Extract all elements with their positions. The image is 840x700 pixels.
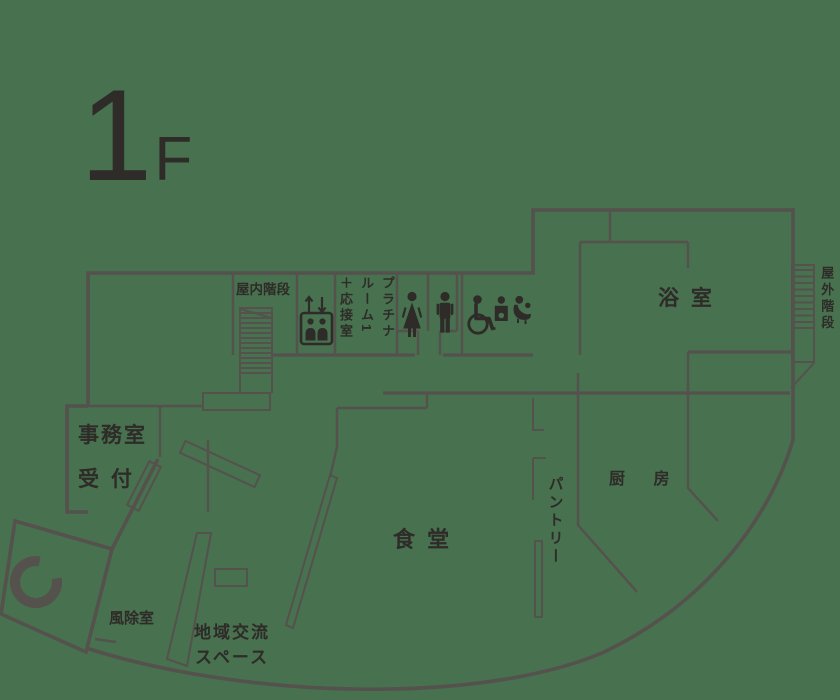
community-line-2: スペース xyxy=(168,646,296,671)
lobby-counter xyxy=(180,441,260,487)
under-stair-box xyxy=(203,393,270,410)
outer-wall-west-jog xyxy=(67,406,88,512)
elevator-up-arrow-icon xyxy=(306,297,313,312)
room-label-office: 事務室 xyxy=(78,424,147,447)
floorplan-1f: 1 F 屋内階段 プラチナ ルーム1 ＋応接室 浴 室 屋外階段 事務室 受 付… xyxy=(0,0,840,700)
ostomate-icon xyxy=(495,296,508,321)
kitchen-east-wall xyxy=(688,352,718,521)
elevator-down-arrow-icon xyxy=(319,297,326,312)
windbreak-door xyxy=(95,639,116,642)
floor-suffix: F xyxy=(154,129,192,191)
dining-northwest-wall xyxy=(330,393,427,477)
dining-community-wall-band xyxy=(286,475,337,628)
room-label-outdoor-stairs: 屋外階段 xyxy=(819,266,833,332)
bath-west-walls xyxy=(580,210,688,355)
floor-number: 1 xyxy=(80,70,152,200)
room-label-community-space: 地域交流 スペース xyxy=(168,621,296,670)
platinum-col-2: ルーム1 xyxy=(357,276,376,340)
community-line-1: 地域交流 xyxy=(168,621,296,646)
room-label-bath: 浴 室 xyxy=(658,287,715,310)
room-label-platinum-room: プラチナ ルーム1 ＋応接室 xyxy=(336,276,397,340)
floor-label: 1 F xyxy=(80,70,192,200)
room-label-dining: 食 堂 xyxy=(393,528,452,552)
room-label-pantry: パントリー xyxy=(546,476,563,566)
indoor-stairs-hatch xyxy=(240,308,272,393)
baby-care-icon xyxy=(514,296,531,324)
pantry-west-wall xyxy=(533,398,546,500)
male-toilet-icon xyxy=(437,292,454,333)
revolving-door-icon xyxy=(15,561,57,603)
pantry-west-wall-lower xyxy=(535,541,542,617)
room-label-reception: 受 付 xyxy=(78,468,135,491)
platinum-col-1: プラチナ xyxy=(378,276,397,340)
platinum-col-3: ＋応接室 xyxy=(336,276,355,340)
wedge-side-box xyxy=(215,569,247,586)
room-label-indoor-stairs: 屋内階段 xyxy=(236,283,290,298)
toilet-vestibule xyxy=(397,331,457,355)
main-inner-walls xyxy=(272,352,793,393)
wheelchair-icon xyxy=(469,295,496,333)
room-label-windbreak: 風除室 xyxy=(109,611,154,628)
room-label-kitchen: 厨 房 xyxy=(609,471,681,489)
elevator-icon xyxy=(301,297,332,344)
